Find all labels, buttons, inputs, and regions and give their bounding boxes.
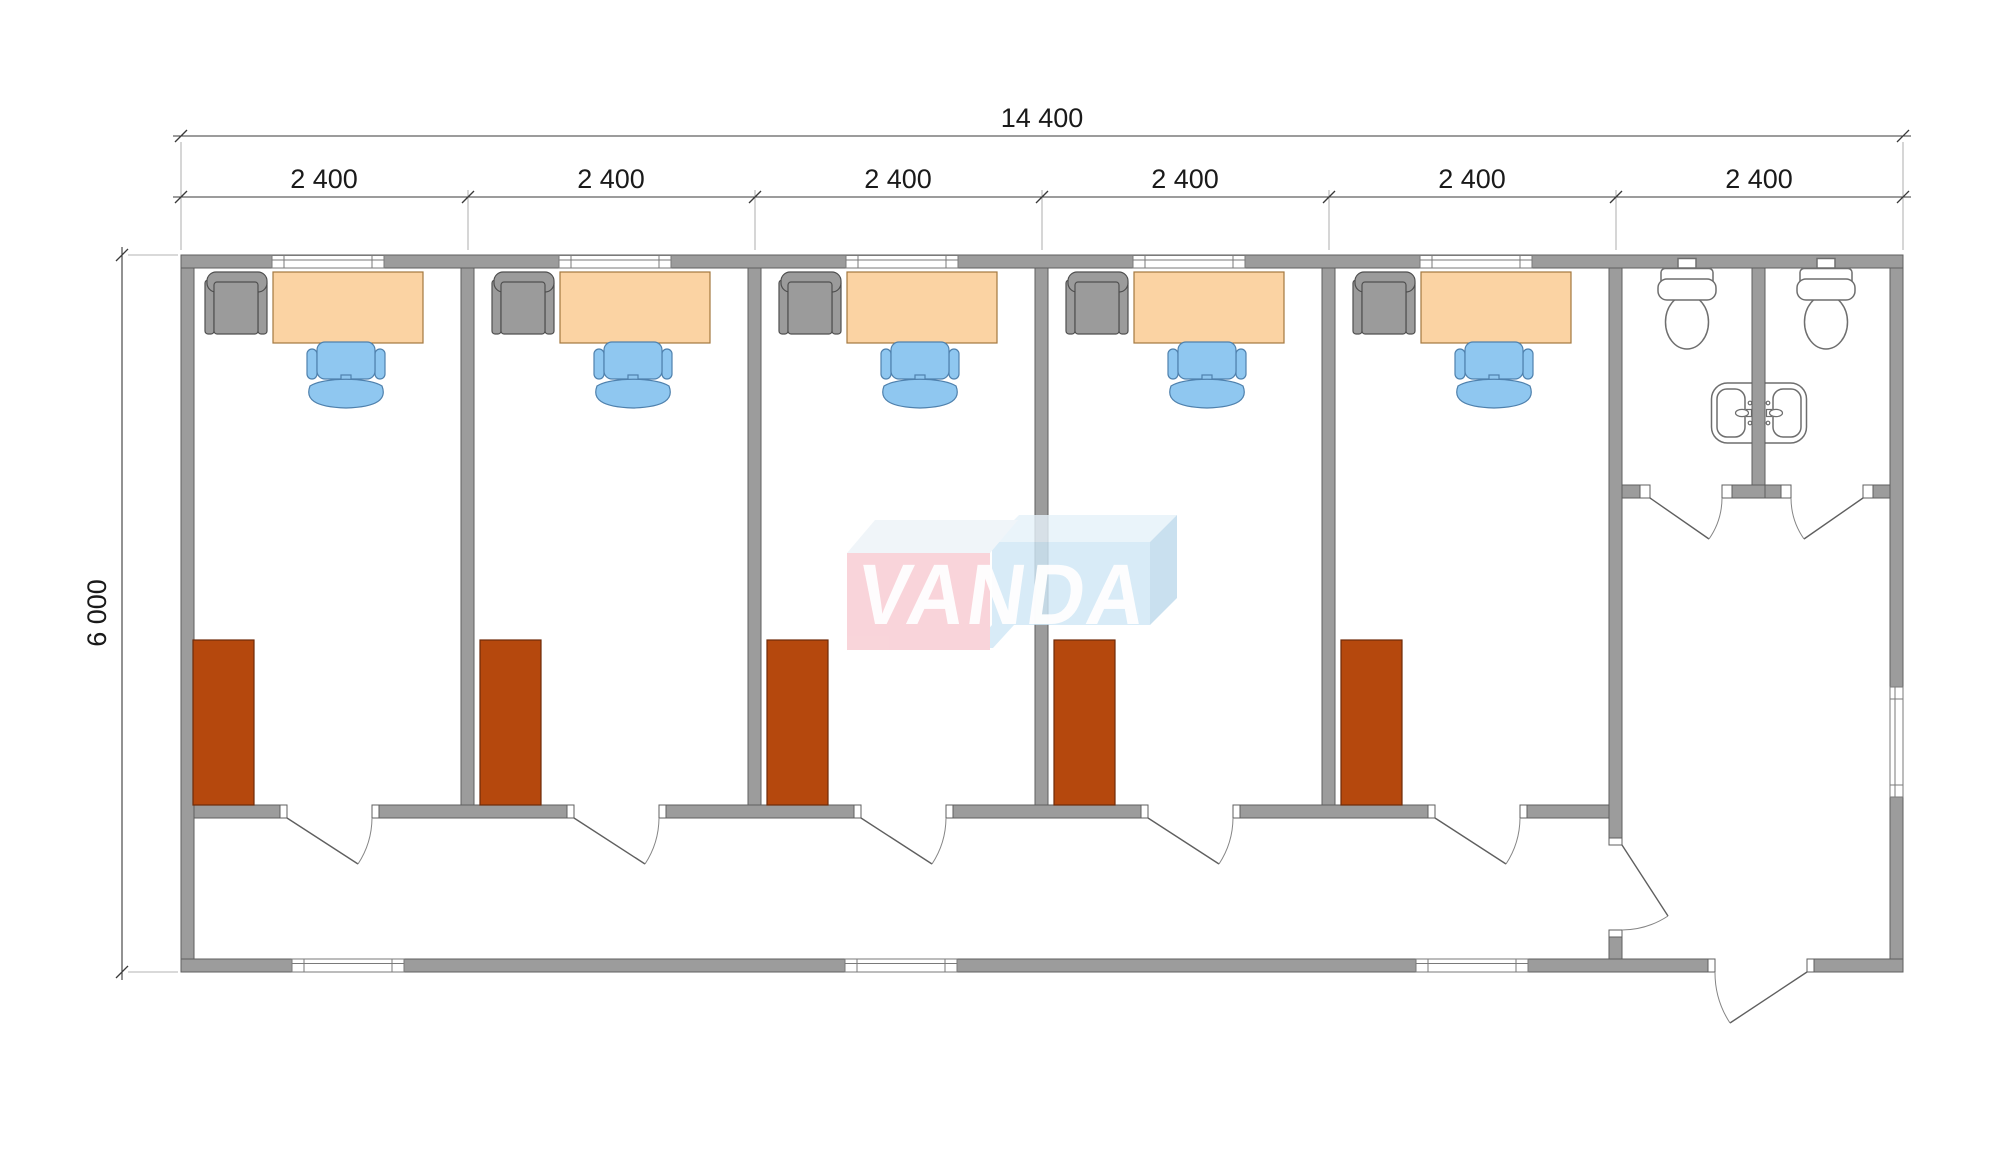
dim-module-4: 2 400 <box>1151 164 1219 194</box>
office-room-5 <box>1341 256 1571 865</box>
door-jamb <box>1640 485 1650 498</box>
floor-plan-drawing: 14 400 2 400 2 400 2 400 2 400 2 400 2 4… <box>0 0 2000 1172</box>
wc-door-1 <box>1650 498 1722 539</box>
dim-module-2: 2 400 <box>577 164 645 194</box>
wc-door-2 <box>1791 498 1863 539</box>
sanitary-partition-wall-stub <box>1609 937 1622 959</box>
door-jamb <box>1781 485 1791 498</box>
bottom-wall <box>181 959 1903 972</box>
dim-module-1: 2 400 <box>290 164 358 194</box>
dim-module-5: 2 400 <box>1438 164 1506 194</box>
dim-total-width: 14 400 <box>1001 103 1084 133</box>
window-right <box>1890 687 1903 797</box>
dim-module-3: 2 400 <box>864 164 932 194</box>
floor-plan: 14 400 2 400 2 400 2 400 2 400 2 400 2 4… <box>0 0 2000 1172</box>
dim-module-6: 2 400 <box>1725 164 1793 194</box>
partition-wall-1 <box>461 268 474 818</box>
toilet-2 <box>1797 259 1855 350</box>
right-wall <box>1890 268 1903 959</box>
window-bottom-3 <box>1416 959 1528 972</box>
wc-front-wall <box>1873 485 1890 498</box>
wc-front-wall <box>1732 485 1765 498</box>
dim-total-depth: 6 000 <box>82 579 112 647</box>
wc-front-wall <box>1765 485 1781 498</box>
office-room-2 <box>480 256 710 865</box>
entrance-door-swing <box>1715 972 1730 1023</box>
vanda-logo-text: VANDA <box>852 546 1155 642</box>
top-wall <box>181 255 1903 268</box>
door-jamb <box>1863 485 1873 498</box>
toilet-1 <box>1658 259 1716 350</box>
door-jamb <box>1807 959 1814 972</box>
partition-wall-2 <box>748 268 761 818</box>
entrance-door <box>1708 958 1814 1023</box>
door-jamb <box>1609 930 1622 937</box>
wc-front-wall <box>1622 485 1640 498</box>
left-wall <box>181 268 194 959</box>
lobby-door <box>1622 845 1668 930</box>
faucet-right <box>1770 409 1783 416</box>
window-bottom-1 <box>292 959 404 972</box>
wc-divider-wall <box>1752 268 1765 498</box>
logo-blue-slab-top <box>992 515 1177 542</box>
partition-wall-4 <box>1322 268 1335 818</box>
window-bottom-2 <box>845 959 957 972</box>
office-room-1 <box>193 256 423 865</box>
faucet-left <box>1736 409 1749 416</box>
door-jamb <box>1708 959 1715 972</box>
sanitary-partition-wall <box>1609 268 1622 838</box>
entrance-door-leaf <box>1730 972 1807 1023</box>
door-jamb <box>1722 485 1732 498</box>
door-jamb <box>1609 838 1622 845</box>
